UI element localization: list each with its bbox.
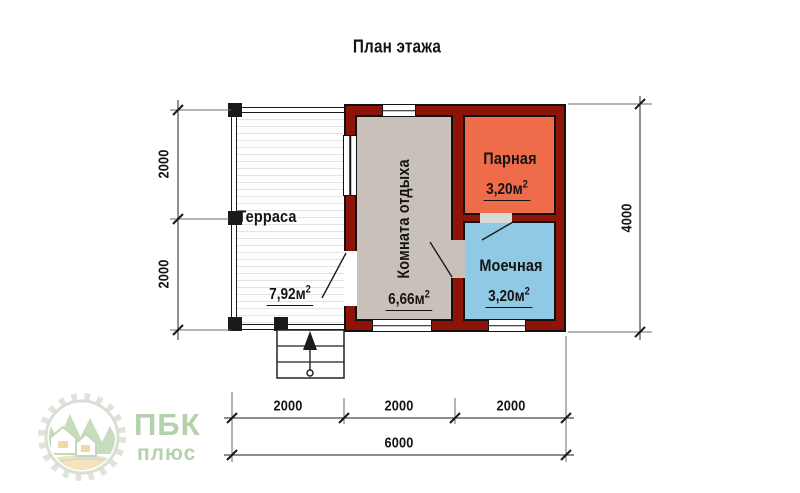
- dim-bottom-3: 2000: [496, 398, 525, 415]
- company-logo: ПБК плюс: [10, 390, 205, 486]
- page-title: План этажа: [353, 37, 441, 58]
- terrace-post: [274, 317, 288, 331]
- room-label-wash: Моечная: [479, 256, 542, 276]
- logo-subtext: плюс: [137, 442, 196, 465]
- stairs-start-marker: [307, 370, 313, 376]
- door-opening-rest-wash: [451, 240, 465, 278]
- door-opening-steam-wash: [480, 213, 512, 223]
- logo-text: ПБК: [134, 407, 200, 442]
- room-area-terrace: 7,92м2: [267, 286, 314, 306]
- terrace-wall-bottom: [231, 324, 346, 330]
- dim-bottom-total: 6000: [384, 435, 413, 452]
- door-opening-terrace: [344, 251, 357, 306]
- room-label-steam: Парная: [483, 149, 536, 169]
- terrace-post: [228, 103, 242, 117]
- dim-left-lower: 2000: [156, 259, 173, 288]
- window-bottom-rest: [372, 319, 432, 332]
- dim-right-total: 4000: [619, 203, 636, 232]
- dim-bottom-1: 2000: [273, 398, 302, 415]
- window-left-wall: [343, 135, 357, 196]
- dim-left-upper: 2000: [156, 149, 173, 178]
- room-area-rest: 6,66м2: [386, 291, 433, 311]
- room-area-steam: 3,20м2: [484, 181, 531, 201]
- terrace-post: [228, 317, 242, 331]
- window-top-wall: [382, 104, 416, 117]
- stairs-direction-arrow: [303, 331, 317, 350]
- window-bottom-wash: [488, 319, 526, 332]
- dim-bottom-2: 2000: [384, 398, 413, 415]
- room-area-wash: 3,20м2: [486, 288, 533, 308]
- room-label-terrace: Терраса: [237, 207, 296, 227]
- room-label-rest: Комната отдыха: [394, 159, 414, 278]
- terrace-wall-top: [231, 107, 346, 113]
- stairs: [277, 330, 344, 378]
